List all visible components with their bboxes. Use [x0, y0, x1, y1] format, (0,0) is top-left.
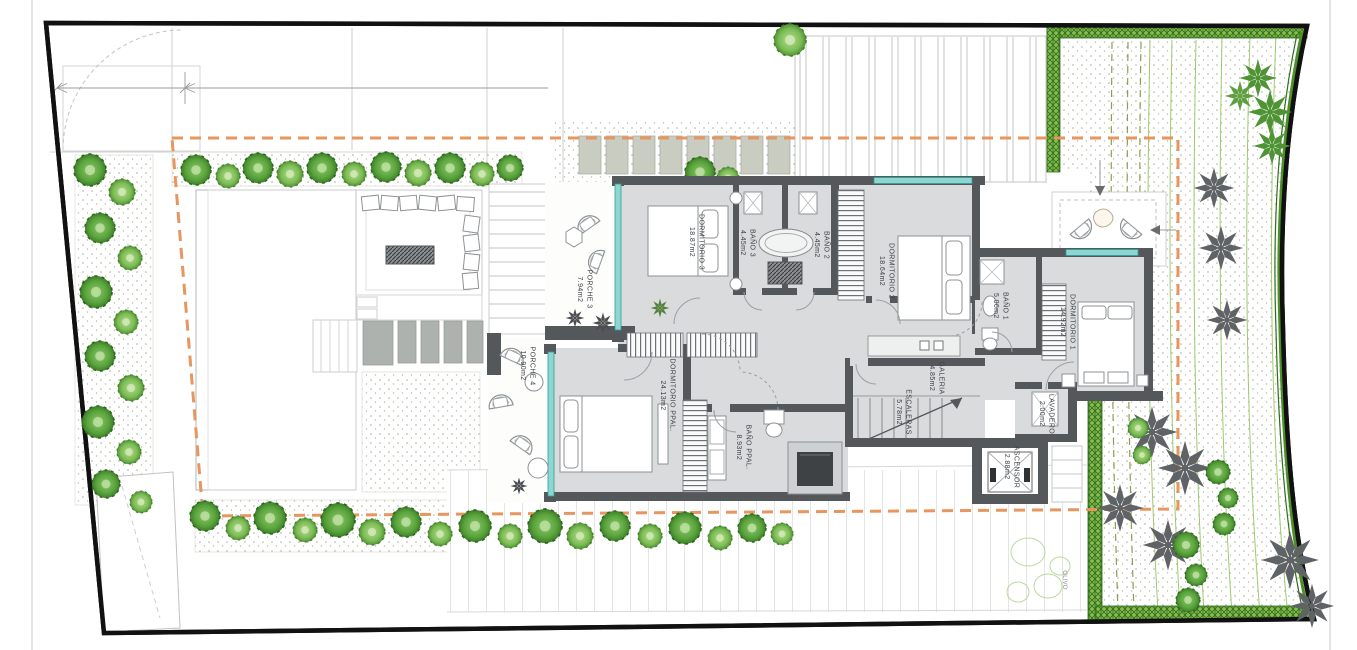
floor-plan-drawing — [0, 0, 1357, 650]
room-label-dormitorio-ppal: DORMITORIO PPAL.24.13m2 — [658, 358, 677, 431]
room-label-escaleras: ESCALERAS5.78m2 — [894, 389, 913, 435]
room-label-porche-4: PORCHE 410.90m2 — [518, 347, 537, 386]
room-label-dormitorio-2: DORMITORIO 218.64m2 — [877, 243, 896, 299]
room-label-galeria: GALERIA4.85m2 — [927, 361, 946, 394]
room-label-bano-3: BAÑO 34.45m2 — [738, 229, 757, 257]
room-label-bano-ppal: BAÑO PPAL.8.93m2 — [734, 424, 753, 469]
room-label-lavadero: LAVADERO2.00m2 — [1037, 394, 1056, 434]
pool-terrace — [196, 190, 357, 490]
room-label-ascensor: ASCENSOR2.88m2 — [1002, 446, 1021, 489]
floor-plan-canvas: DORMITORIO 318.87m2 BAÑO 34.45m2 BAÑO 24… — [0, 0, 1357, 650]
room-label-porche-3: PORCHE 37.94m2 — [575, 270, 594, 309]
service-steps — [1052, 446, 1082, 502]
room-label-bano-1: BAÑO 15.06m2 — [991, 292, 1010, 320]
room-label-dormitorio-3: DORMITORIO 318.87m2 — [687, 214, 706, 270]
tree-label-olivo: OLIVO — [1060, 570, 1068, 589]
room-label-bano-2: BAÑO 24.45m2 — [812, 231, 831, 259]
room-label-dormitorio-1: DORMITORIO 114.92m2 — [1058, 294, 1077, 350]
